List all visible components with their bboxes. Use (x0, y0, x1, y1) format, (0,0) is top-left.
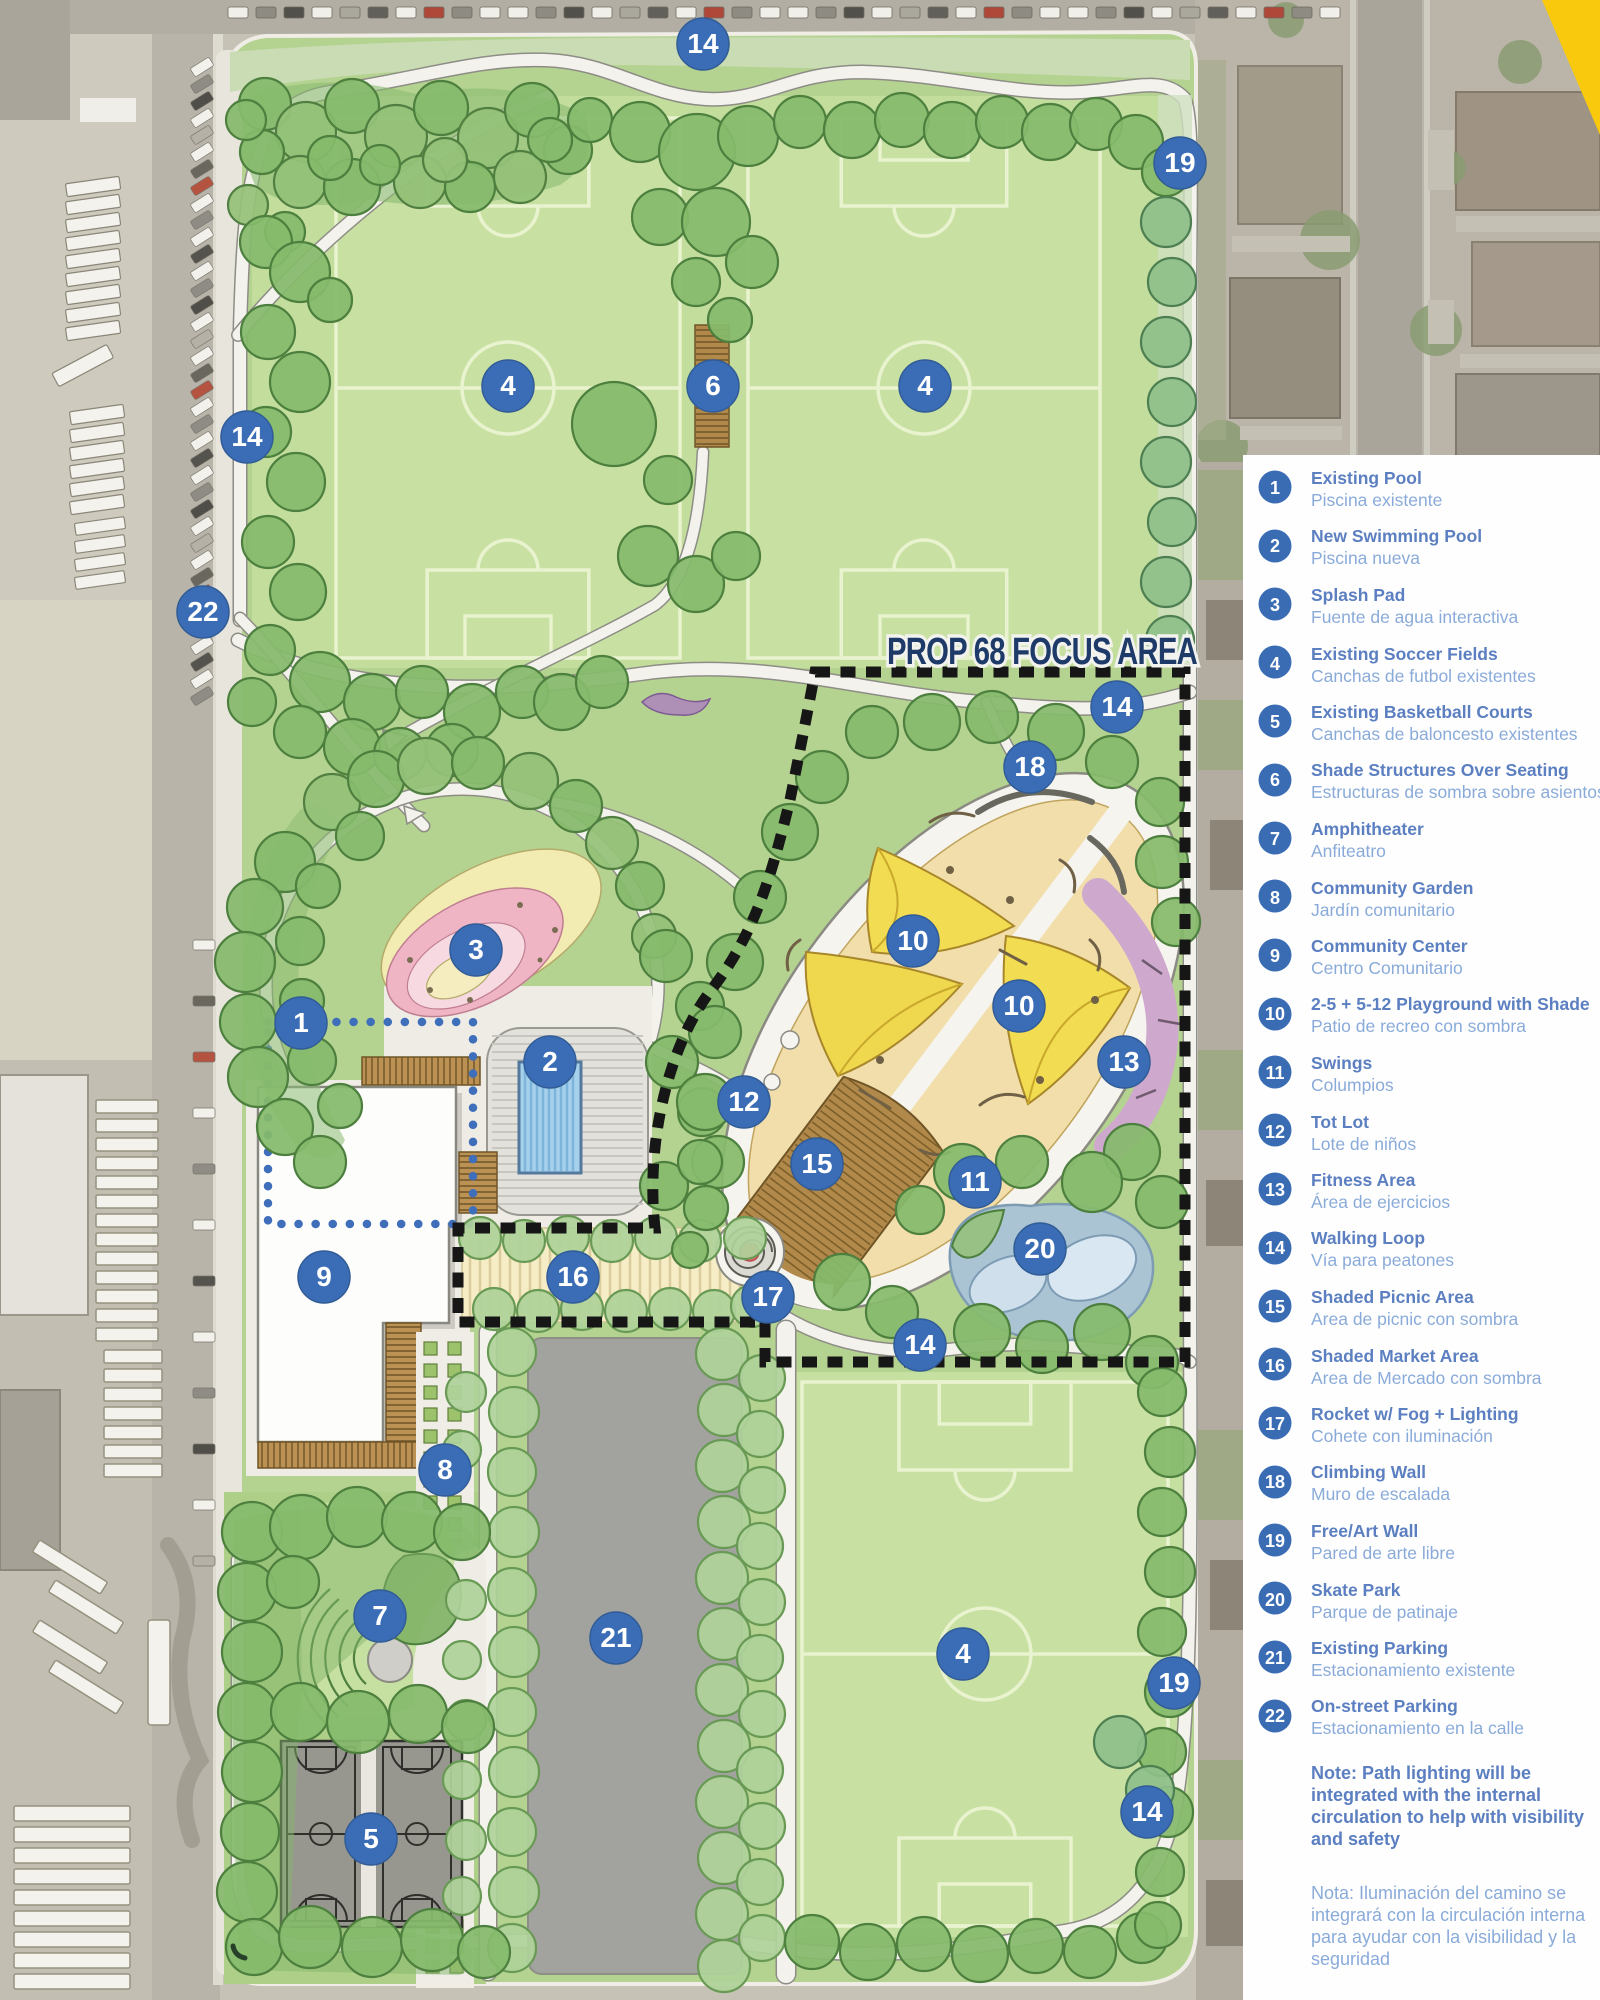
svg-text:Area de Mercado con sombra: Area de Mercado con sombra (1311, 1368, 1542, 1388)
svg-text:14: 14 (687, 28, 719, 59)
svg-text:Rocket w/ Fog + Lighting: Rocket w/ Fog + Lighting (1311, 1404, 1519, 1424)
svg-text:Swings: Swings (1311, 1053, 1373, 1073)
svg-text:19: 19 (1164, 147, 1195, 178)
svg-text:1: 1 (1270, 478, 1280, 498)
svg-text:Parque de patinaje: Parque de patinaje (1311, 1602, 1458, 1622)
svg-text:8: 8 (1270, 888, 1280, 908)
svg-text:Walking Loop: Walking Loop (1311, 1228, 1425, 1248)
svg-text:Shade Structures Over Seating: Shade Structures Over Seating (1311, 760, 1569, 780)
svg-text:Patio de recreo con sombra: Patio de recreo con sombra (1311, 1016, 1526, 1036)
svg-text:2: 2 (1270, 536, 1280, 556)
svg-text:13: 13 (1108, 1046, 1139, 1077)
svg-text:integrará con la circulación i: integrará con la circulación interna (1311, 1905, 1586, 1925)
svg-text:6: 6 (1270, 770, 1280, 790)
svg-text:Splash Pad: Splash Pad (1311, 585, 1405, 605)
svg-text:Lote de niños: Lote de niños (1311, 1134, 1416, 1154)
svg-text:Piscina existente: Piscina existente (1311, 490, 1442, 510)
svg-text:1: 1 (293, 1007, 309, 1038)
svg-text:Fitness Area: Fitness Area (1311, 1170, 1416, 1190)
svg-text:4: 4 (955, 1638, 971, 1669)
svg-text:8: 8 (437, 1454, 453, 1485)
svg-text:10: 10 (1265, 1004, 1285, 1024)
svg-text:Estacionamiento en la calle: Estacionamiento en la calle (1311, 1718, 1524, 1738)
svg-text:15: 15 (1265, 1297, 1285, 1317)
svg-text:Note: Path lighting will be: Note: Path lighting will be (1311, 1763, 1531, 1783)
svg-text:Muro de escalada: Muro de escalada (1311, 1484, 1450, 1504)
svg-text:4: 4 (917, 370, 933, 401)
svg-text:Shaded Picnic Area: Shaded Picnic Area (1311, 1287, 1474, 1307)
svg-text:2-5 + 5-12 Playground with Sha: 2-5 + 5-12 Playground with Shade (1311, 994, 1590, 1014)
svg-text:Centro Comunitario: Centro Comunitario (1311, 958, 1463, 978)
svg-text:7: 7 (372, 1600, 388, 1631)
svg-text:Pared de arte libre: Pared de arte libre (1311, 1543, 1455, 1563)
svg-text:Jardín comunitario: Jardín comunitario (1311, 900, 1455, 920)
svg-text:20: 20 (1265, 1590, 1285, 1610)
svg-text:22: 22 (1265, 1706, 1285, 1726)
svg-text:7: 7 (1270, 829, 1280, 849)
svg-text:Shaded Market Area: Shaded Market Area (1311, 1346, 1479, 1366)
svg-text:18: 18 (1265, 1472, 1285, 1492)
svg-text:6: 6 (705, 370, 721, 401)
svg-text:4: 4 (1270, 654, 1280, 674)
svg-text:3: 3 (468, 934, 484, 965)
svg-text:Cohete con iluminación: Cohete con iluminación (1311, 1426, 1493, 1446)
svg-text:14: 14 (904, 1329, 936, 1360)
svg-text:12: 12 (728, 1086, 759, 1117)
svg-text:21: 21 (1265, 1648, 1285, 1668)
svg-text:5: 5 (363, 1823, 379, 1854)
svg-text:9: 9 (316, 1261, 332, 1292)
svg-text:Skate Park: Skate Park (1311, 1580, 1401, 1600)
svg-text:Free/Art Wall: Free/Art Wall (1311, 1521, 1418, 1541)
svg-text:Existing Basketball Courts: Existing Basketball Courts (1311, 702, 1533, 722)
svg-text:10: 10 (897, 925, 928, 956)
svg-text:Estructuras de sombra sobre as: Estructuras de sombra sobre asientos (1311, 782, 1600, 802)
svg-text:3: 3 (1270, 595, 1280, 615)
svg-text:16: 16 (1265, 1356, 1285, 1376)
svg-text:Vía para peatones: Vía para peatones (1311, 1250, 1454, 1270)
svg-text:Piscina nueva: Piscina nueva (1311, 548, 1420, 568)
svg-text:Amphitheater: Amphitheater (1311, 819, 1424, 839)
svg-text:Community Center: Community Center (1311, 936, 1468, 956)
svg-text:Existing Soccer Fields: Existing Soccer Fields (1311, 644, 1498, 664)
svg-text:14: 14 (231, 421, 263, 452)
svg-text:Fuente de agua interactiva: Fuente de agua interactiva (1311, 607, 1518, 627)
svg-text:Tot Lot: Tot Lot (1311, 1112, 1369, 1132)
svg-text:Existing Pool: Existing Pool (1311, 468, 1422, 488)
svg-text:New Swimming Pool: New Swimming Pool (1311, 526, 1482, 546)
svg-text:PROP 68 FOCUS AREA: PROP 68 FOCUS AREA (887, 631, 1197, 673)
svg-text:18: 18 (1014, 751, 1045, 782)
svg-text:20: 20 (1024, 1233, 1055, 1264)
svg-text:21: 21 (600, 1622, 631, 1653)
svg-text:16: 16 (557, 1261, 588, 1292)
svg-text:Estacionamiento existente: Estacionamiento existente (1311, 1660, 1515, 1680)
svg-text:14: 14 (1101, 691, 1133, 722)
svg-text:17: 17 (752, 1281, 783, 1312)
svg-text:12: 12 (1265, 1122, 1285, 1142)
svg-text:9: 9 (1270, 946, 1280, 966)
svg-text:11: 11 (960, 1166, 990, 1197)
svg-text:Columpios: Columpios (1311, 1075, 1394, 1095)
svg-text:Canchas de futbol existentes: Canchas de futbol existentes (1311, 666, 1536, 686)
svg-text:10: 10 (1003, 990, 1034, 1021)
svg-text:On-street Parking: On-street Parking (1311, 1696, 1458, 1716)
svg-text:Existing Parking: Existing Parking (1311, 1638, 1448, 1658)
svg-text:19: 19 (1158, 1667, 1189, 1698)
svg-text:11: 11 (1265, 1063, 1284, 1083)
svg-text:13: 13 (1265, 1180, 1285, 1200)
svg-text:Nota: Iluminación del camino s: Nota: Iluminación del camino se (1311, 1883, 1566, 1903)
svg-text:Area de picnic con sombra: Area de picnic con sombra (1311, 1309, 1518, 1329)
svg-text:19: 19 (1265, 1531, 1285, 1551)
svg-text:integrated with the internal: integrated with the internal (1311, 1785, 1541, 1805)
svg-text:Canchas de baloncesto existent: Canchas de baloncesto existentes (1311, 724, 1578, 744)
svg-text:15: 15 (801, 1148, 832, 1179)
svg-text:circulation to help with visib: circulation to help with visibility (1311, 1807, 1584, 1827)
svg-text:Climbing Wall: Climbing Wall (1311, 1462, 1426, 1482)
svg-text:para ayudar con la visibilidad: para ayudar con la visibilidad y la (1311, 1927, 1577, 1947)
svg-text:5: 5 (1270, 712, 1280, 732)
svg-text:and safety: and safety (1311, 1829, 1400, 1849)
svg-text:Área de ejercicios: Área de ejercicios (1311, 1192, 1450, 1212)
svg-text:2: 2 (542, 1046, 558, 1077)
svg-text:14: 14 (1131, 1796, 1163, 1827)
svg-text:Anfiteatro: Anfiteatro (1311, 841, 1386, 861)
svg-text:4: 4 (500, 370, 516, 401)
svg-text:22: 22 (187, 596, 218, 627)
svg-text:14: 14 (1265, 1238, 1285, 1258)
svg-text:17: 17 (1265, 1414, 1285, 1434)
svg-text:Community Garden: Community Garden (1311, 878, 1473, 898)
svg-text:seguridad: seguridad (1311, 1949, 1390, 1969)
